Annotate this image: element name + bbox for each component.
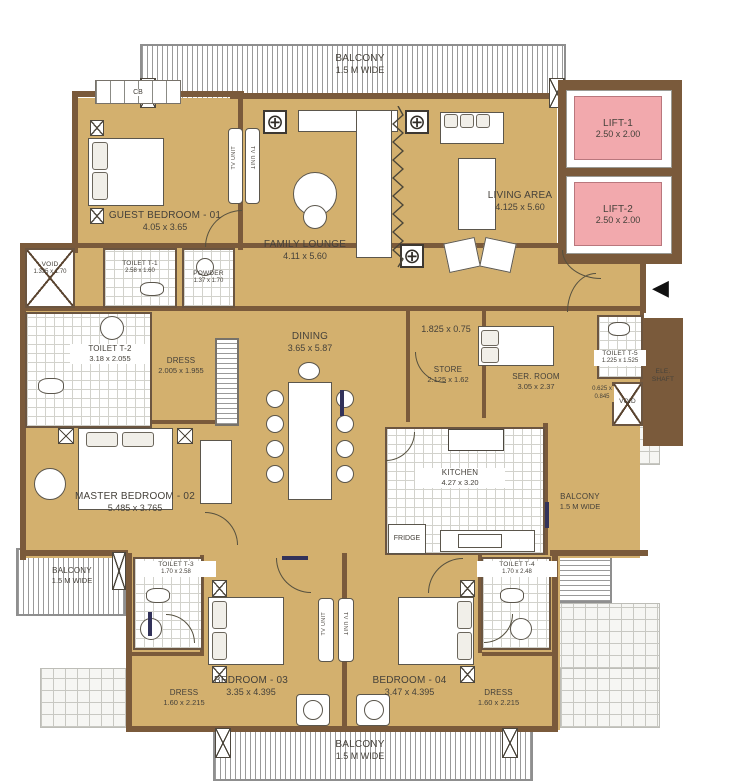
dining-chair [336,440,354,458]
toilet-t3-label: TOILET T-3 1.70 x 2.58 [136,561,216,577]
toilet-t2-label: TOILET T-2 3.18 x 2.055 [70,344,150,364]
wall [72,91,78,253]
wall [552,553,558,731]
pillow [460,114,474,128]
tv-unit-label: TV UNIT [249,146,255,170]
pillow [457,632,472,660]
sofa [356,110,392,258]
balcony-left-label: BALCONY 1.5 M WIDE [22,566,122,586]
pillow [86,432,118,447]
door-leaf [340,390,344,416]
toilet-t1 [103,248,177,308]
dining-chair [266,390,284,408]
lift-2: LIFT-2 2.50 x 2.00 [574,182,662,246]
dining-chair [266,415,284,433]
balcony-post [502,728,518,758]
ser-room-label: SER. ROOM 3.05 x 2.37 [490,372,582,392]
wall [482,652,558,656]
wall [230,93,564,99]
dining-chair [298,362,320,380]
toilet-t5-label: TOILET T-5 1.225 x 1.525 [594,350,646,366]
terrace-grid-right [548,603,660,669]
kitchen-sink [458,534,502,548]
terrace-grid-bottom-left [40,668,130,728]
stove [448,429,504,451]
powder-label: POWDER 1.37 x 1.70 [183,270,234,286]
side-table [58,428,74,444]
wc [38,378,64,394]
tv-unit-label: TV UNIT [321,612,327,636]
sink [510,618,532,640]
family-lounge-label: FAMILY LOUNGE 4.11 x 5.60 [240,238,370,263]
dining-chair [336,415,354,433]
balcony-bottom-label: BALCONY 1.5 M WIDE [275,738,445,763]
zigzag-divider [392,106,404,268]
column-icon: ⊕ [263,110,287,134]
dining-chair [336,465,354,483]
terrace-grid-bottom-right [560,668,660,728]
kitchen-label: KITCHEN 4.27 x 3.20 [415,468,505,488]
pillow [122,432,154,447]
dining-chair [266,465,284,483]
column-icon: ⊕ [405,110,429,134]
balcony-top-label: BALCONY 1.5 M WIDE [280,52,440,77]
fridge-label: FRIDGE [388,534,426,543]
dress-03-label: DRESS 1.60 x 2.215 [143,688,225,708]
door-leaf [148,612,152,636]
tv-unit-label: TV UNIT [231,146,237,170]
wall [550,550,648,556]
pillow [212,632,227,660]
toilet-t2 [25,312,152,428]
store-label: STORE 2.125 x 1.62 [412,365,484,385]
ele-shaft-label: ELE. SHAFT [648,368,678,385]
round-table [303,205,327,229]
pillow [92,172,108,200]
tv-unit-label: TV UNIT [342,612,348,636]
void-small-label: VOID [613,398,642,406]
wall [126,553,132,731]
door-leaf [282,556,308,560]
void-left-label: VOID 1.335 x 1.70 [27,261,73,277]
lift-1: LIFT-1 2.50 x 2.00 [574,96,662,160]
wc [500,588,524,603]
pillow [481,347,499,363]
side-table [90,120,104,136]
entry-arrow-icon: ◀ [652,277,669,299]
pillow [476,114,490,128]
bedroom-04-label: BEDROOM - 04 3.47 x 4.395 [352,674,467,699]
floor-plan: BALCONY 1.5 M WIDE BALCONY 1.5 M WIDE BA… [0,0,735,781]
wc [140,282,164,296]
side-table [177,428,193,444]
void-right-dims: 0.625 x 0.845 [590,386,614,402]
balcony-post [215,728,231,758]
stool [303,700,323,720]
armchair [479,237,517,273]
living-area-label: LIVING AREA 4.125 x 5.60 [455,189,585,214]
pillow [212,601,227,629]
toilet-t4-label: TOILET T-4 1.70 x 2.48 [477,561,557,577]
wc [608,322,630,336]
sink [100,316,124,340]
stool [364,700,384,720]
master-bedroom-label: MASTER BEDROOM - 02 5.485 x 3.765 [55,490,215,515]
dining-chair [336,390,354,408]
wall [126,652,204,656]
wardrobe-strip [215,338,239,426]
dress-04-label: DRESS 1.60 x 2.215 [456,688,541,708]
balcony-right-label: BALCONY 1.5 M WIDE [548,492,612,512]
dining-label: DINING 3.65 x 5.87 [260,330,360,355]
pillow [92,142,108,170]
void-left [25,248,75,308]
cb-label: CB [131,89,145,96]
toilet-t1-label: TOILET T-1 2.58 x 1.60 [105,260,175,276]
cb-closet: CB [95,80,181,104]
side-table [212,580,227,597]
guest-bedroom-label: GUEST BEDROOM - 01 4.05 x 3.65 [95,209,235,234]
dining-chair [266,440,284,458]
dress-master-label: DRESS 2.005 x 1.955 [148,356,214,376]
pillow [457,601,472,629]
pillow [444,114,458,128]
niche-label: 1.825 x 0.75 [408,324,484,336]
wc [146,588,170,603]
dining-table [288,382,332,500]
